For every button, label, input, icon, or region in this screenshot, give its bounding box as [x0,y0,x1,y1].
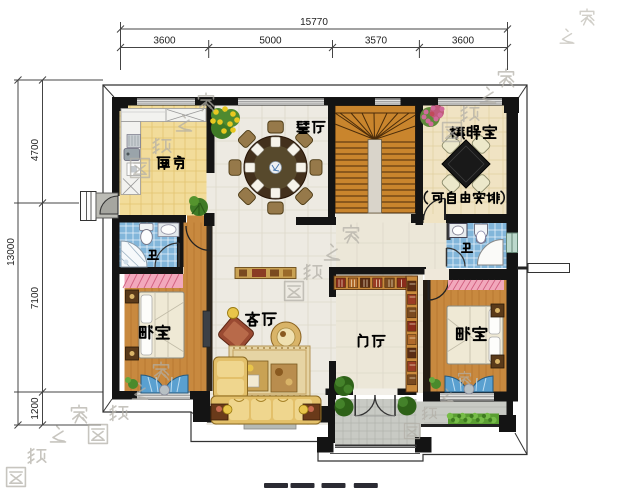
svg-text:1200: 1200 [30,397,41,420]
svg-text:13000: 13000 [6,238,17,266]
svg-text:5000: 5000 [259,36,282,47]
svg-text:3570: 3570 [365,36,388,47]
svg-text:3600: 3600 [153,36,176,47]
svg-text:4700: 4700 [30,138,41,161]
svg-text:15770: 15770 [300,17,328,28]
svg-text:7100: 7100 [30,286,41,309]
svg-text:3600: 3600 [452,36,475,47]
